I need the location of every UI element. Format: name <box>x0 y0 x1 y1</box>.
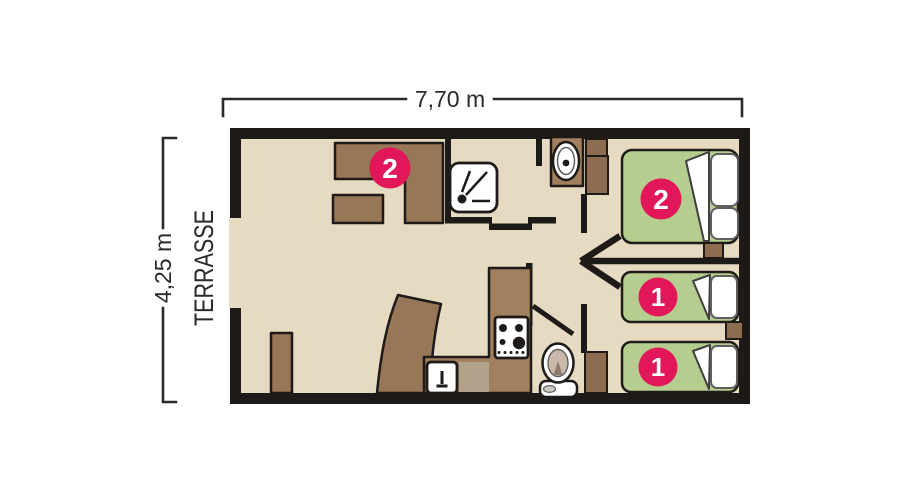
shower <box>450 163 497 212</box>
wall-bedroom1-left <box>581 194 587 233</box>
single-bed-top-pillow <box>711 276 737 318</box>
double-bed-pillow-1 <box>711 154 738 206</box>
terrace-label: TERRASSE <box>189 210 219 326</box>
wall-bathroom-bottom-right <box>528 217 556 224</box>
dimension-top: 7,70 m <box>223 86 742 116</box>
double-bed-pillow-2 <box>711 208 738 239</box>
bathroom-sliding-door <box>489 224 532 231</box>
floorplan-svg: 7,70 m 4,25 m TERRASSE <box>0 0 900 500</box>
single-bed-top-badge-number: 1 <box>651 282 665 312</box>
wall-outer-left-upper <box>230 128 241 218</box>
dimension-left-label: 4,25 m <box>150 233 176 303</box>
wall-bathroom-bottom-left <box>445 217 492 224</box>
living-area-badge-number: 2 <box>382 153 398 184</box>
bedroom2-wardrobe <box>585 352 607 393</box>
wall-bathroom-right <box>536 139 542 166</box>
wall-outer-top <box>230 128 750 139</box>
bedroom2-nightstand <box>726 322 743 339</box>
bedroom1-wardrobe <box>586 156 608 194</box>
stove <box>495 317 528 358</box>
side-cabinet <box>271 333 292 393</box>
coffee-table <box>333 195 383 223</box>
single-bed-bottom-badge-number: 1 <box>651 352 665 382</box>
kitchen-sink <box>427 362 457 393</box>
dimension-top-label: 7,70 m <box>415 86 485 112</box>
double-bed-badge-number: 2 <box>653 184 669 215</box>
dimension-left: 4,25 m <box>150 138 176 402</box>
terrace-door-opening <box>229 218 242 308</box>
wall-outer-right <box>739 128 750 404</box>
toilet-icon <box>540 344 577 398</box>
single-bed-bottom-pillow <box>711 346 737 388</box>
bedroom1-nightstand <box>704 243 723 258</box>
kitchen-appliance <box>459 362 489 392</box>
wall-outer-bottom <box>230 393 750 404</box>
washbasin <box>551 137 583 186</box>
floorplan-page: 7,70 m 4,25 m TERRASSE <box>0 0 900 500</box>
wall-outer-left-lower <box>230 308 241 404</box>
wall-wc-right <box>581 304 587 353</box>
washbasin-icon <box>553 142 579 180</box>
